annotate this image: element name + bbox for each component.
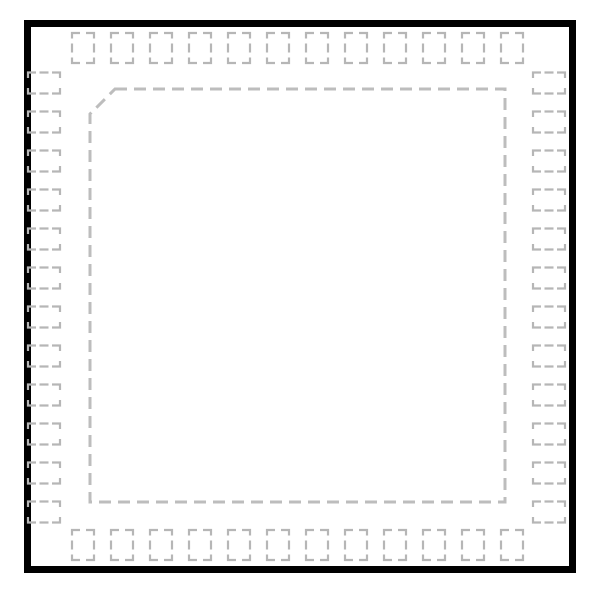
pad-bottom-9 (384, 530, 406, 560)
pad-left-7 (28, 307, 60, 328)
pad-left-2 (28, 112, 60, 133)
pad-bottom-10 (423, 530, 445, 560)
pad-right-5 (533, 229, 565, 250)
pad-bottom-11 (462, 530, 484, 560)
pad-bottom-5 (228, 530, 250, 560)
pad-top-2 (111, 33, 133, 63)
pad-right-8 (533, 346, 565, 367)
pad-right-3 (533, 151, 565, 172)
pad-left-12 (28, 502, 60, 523)
pad-right-2 (533, 112, 565, 133)
package-outer-border (28, 24, 573, 570)
pad-top-7 (306, 33, 328, 63)
pad-left-1 (28, 73, 60, 94)
pad-top-9 (384, 33, 406, 63)
pad-bottom-2 (111, 530, 133, 560)
package-footprint-diagram (0, 0, 600, 599)
pad-top-12 (501, 33, 523, 63)
pad-bottom-7 (306, 530, 328, 560)
pad-left-11 (28, 463, 60, 484)
pad-left-5 (28, 229, 60, 250)
pad-right-11 (533, 463, 565, 484)
pad-bottom-12 (501, 530, 523, 560)
pad-left-10 (28, 424, 60, 445)
pad-top-11 (462, 33, 484, 63)
package-body-outline (90, 89, 505, 502)
pad-top-6 (267, 33, 289, 63)
pad-left-6 (28, 268, 60, 289)
pad-bottom-6 (267, 530, 289, 560)
pad-top-4 (189, 33, 211, 63)
pad-top-8 (345, 33, 367, 63)
pad-bottom-8 (345, 530, 367, 560)
pad-bottom-4 (189, 530, 211, 560)
pad-left-3 (28, 151, 60, 172)
pad-top-1 (72, 33, 94, 63)
pad-left-9 (28, 385, 60, 406)
pad-bottom-1 (72, 530, 94, 560)
pad-right-4 (533, 190, 565, 211)
pad-top-3 (150, 33, 172, 63)
pad-right-12 (533, 502, 565, 523)
pad-top-5 (228, 33, 250, 63)
pad-top-10 (423, 33, 445, 63)
pad-bottom-3 (150, 530, 172, 560)
footprint-svg (0, 0, 600, 599)
pad-right-6 (533, 268, 565, 289)
pad-right-10 (533, 424, 565, 445)
pad-left-4 (28, 190, 60, 211)
pad-right-9 (533, 385, 565, 406)
pad-right-1 (533, 73, 565, 94)
pad-right-7 (533, 307, 565, 328)
pad-left-8 (28, 346, 60, 367)
